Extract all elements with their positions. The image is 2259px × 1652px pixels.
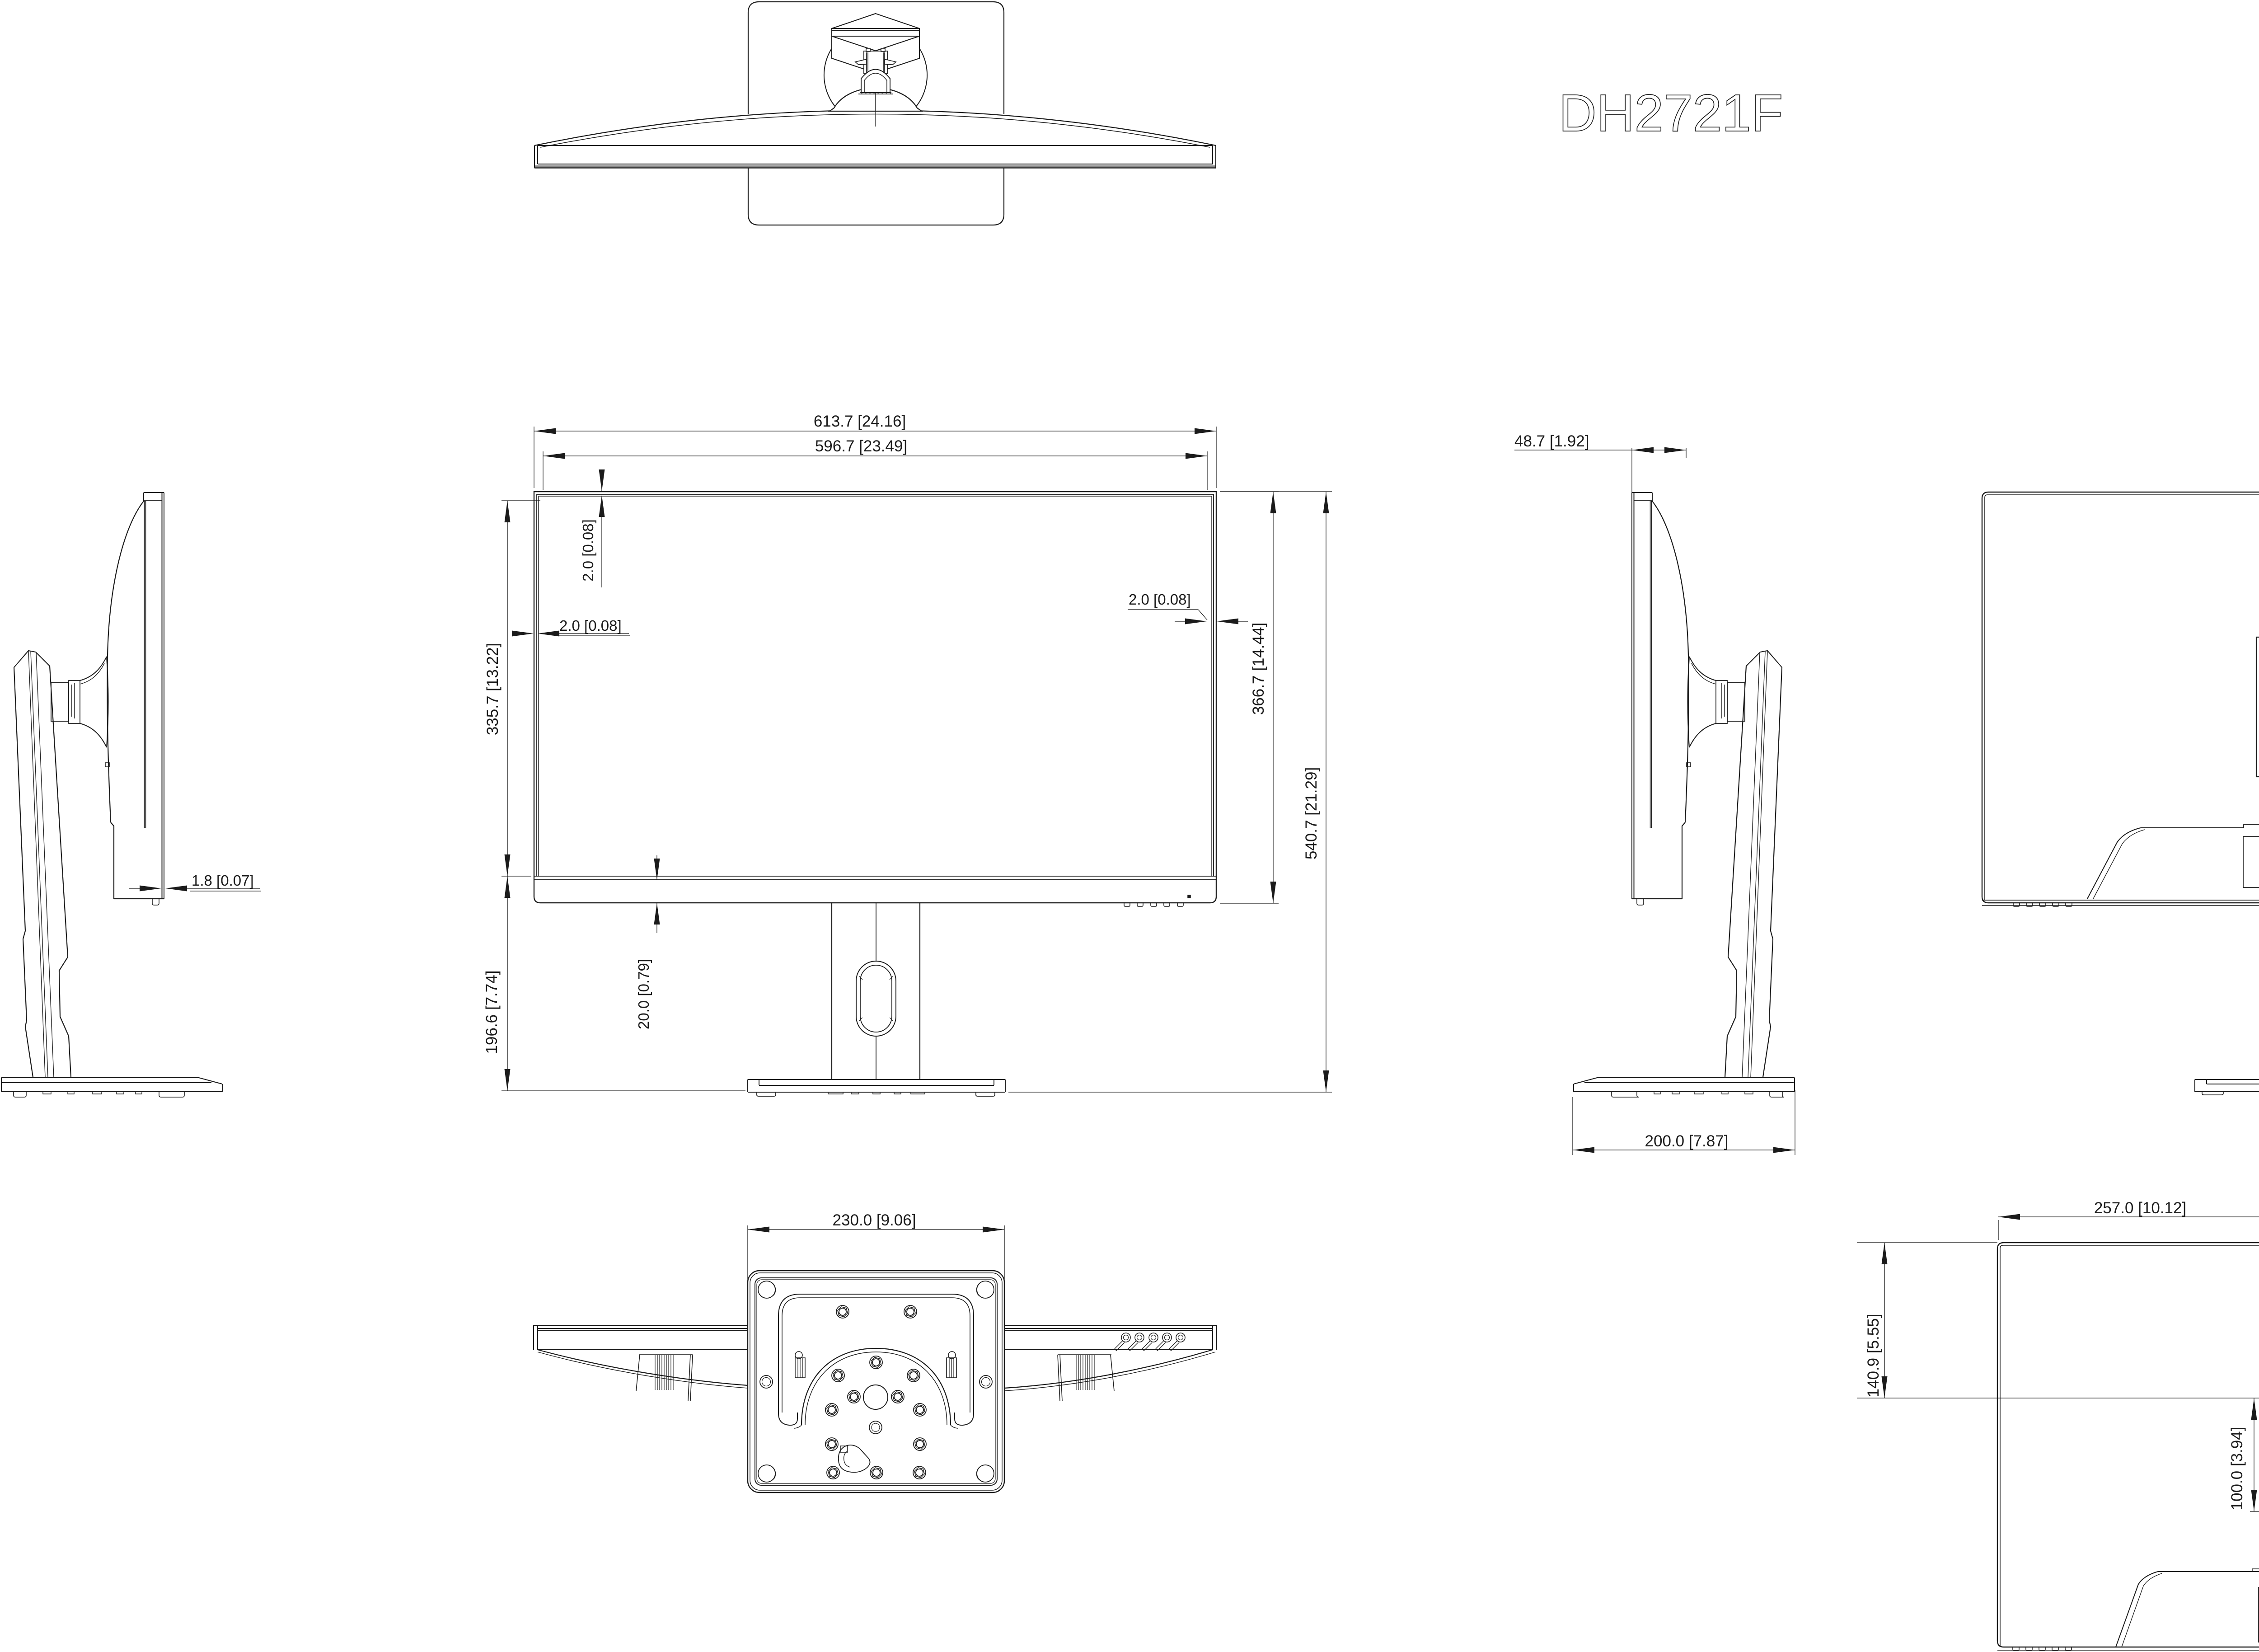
svg-text:596.7 [23.49]: 596.7 [23.49] bbox=[815, 437, 907, 455]
svg-text:140.9 [5.55]: 140.9 [5.55] bbox=[1865, 1314, 1882, 1398]
svg-text:DH2721F: DH2721F bbox=[1559, 84, 1783, 142]
svg-text:2.0 [0.08]: 2.0 [0.08] bbox=[559, 617, 622, 634]
svg-text:366.7 [14.44]: 366.7 [14.44] bbox=[1250, 623, 1267, 715]
svg-text:540.7 [21.29]: 540.7 [21.29] bbox=[1303, 767, 1320, 859]
svg-text:200.0 [7.87]: 200.0 [7.87] bbox=[1645, 1132, 1729, 1150]
svg-text:48.7 [1.92]: 48.7 [1.92] bbox=[1514, 432, 1589, 450]
svg-text:1.8 [0.07]: 1.8 [0.07] bbox=[192, 872, 254, 889]
svg-text:100.0 [3.94]: 100.0 [3.94] bbox=[2228, 1427, 2246, 1511]
svg-text:2.0 [0.08]: 2.0 [0.08] bbox=[580, 519, 596, 582]
svg-text:20.0 [0.79]: 20.0 [0.79] bbox=[635, 959, 652, 1029]
svg-text:2.0 [0.08]: 2.0 [0.08] bbox=[1129, 591, 1191, 608]
svg-text:196.6 [7.74]: 196.6 [7.74] bbox=[483, 971, 501, 1054]
svg-text:335.7 [13.22]: 335.7 [13.22] bbox=[484, 643, 501, 735]
svg-text:257.0 [10.12]: 257.0 [10.12] bbox=[2094, 1199, 2186, 1217]
svg-text:230.0 [9.06]: 230.0 [9.06] bbox=[833, 1211, 916, 1229]
svg-text:613.7 [24.16]: 613.7 [24.16] bbox=[814, 413, 906, 430]
